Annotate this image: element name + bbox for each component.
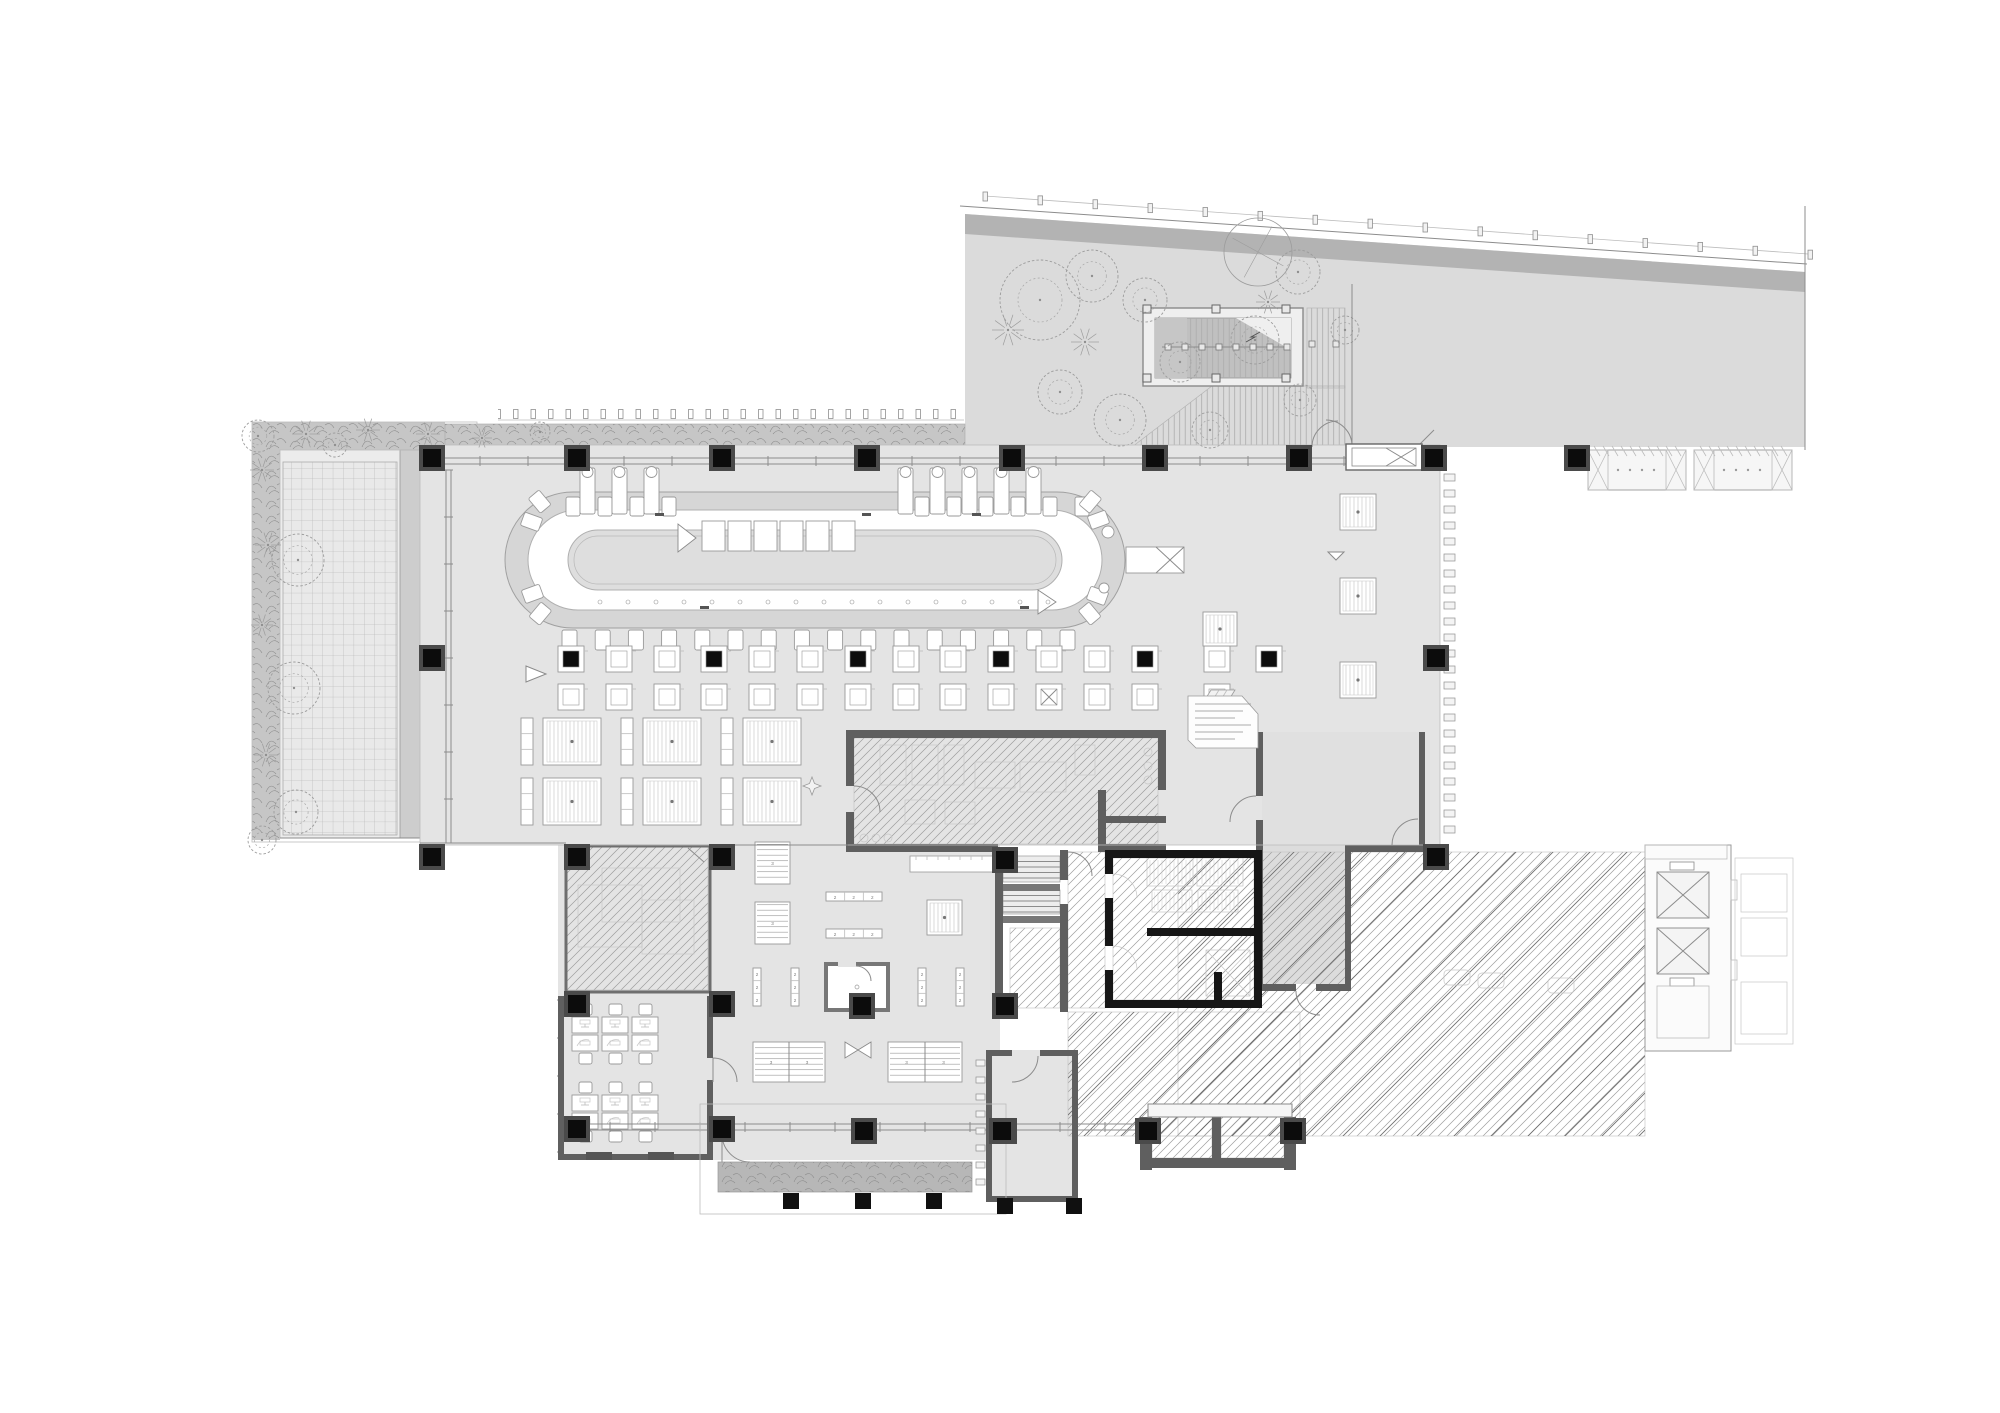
buffet-tray — [806, 521, 829, 551]
counter-seat — [1043, 497, 1057, 516]
counter-seat — [828, 630, 843, 650]
floor-plan: 222222222222222222333333 — [0, 0, 2000, 1413]
buffet-tray — [754, 521, 777, 551]
deck-post — [1199, 344, 1205, 350]
rail-post — [1698, 242, 1703, 251]
mullion — [976, 1128, 985, 1134]
rail-post — [1478, 227, 1483, 236]
mullion — [1444, 490, 1455, 497]
micro-label: 2 — [852, 932, 855, 937]
rail-post — [1368, 219, 1373, 228]
deck-post — [1282, 305, 1290, 313]
hatch-area — [1068, 852, 1105, 1008]
chair — [609, 1082, 622, 1093]
desk — [602, 1035, 628, 1051]
micro-label: 2 — [834, 932, 837, 937]
micro-label: 2 — [794, 985, 797, 990]
deck-post — [1216, 344, 1222, 350]
mullion — [1444, 826, 1455, 833]
chair — [639, 1082, 652, 1093]
rail-post — [1313, 215, 1318, 224]
mullion — [976, 1145, 985, 1151]
counter-seat — [598, 497, 612, 516]
micro-label: 2 — [959, 998, 962, 1003]
mullion — [1444, 794, 1455, 801]
mullion — [1444, 810, 1455, 817]
chair — [639, 1004, 652, 1015]
buffet-tray — [702, 521, 725, 551]
counter-seat — [630, 497, 644, 516]
northeast-entrance — [1346, 444, 1422, 470]
micro-label: 2 — [871, 932, 874, 937]
desk — [572, 1035, 598, 1051]
mullion — [976, 1094, 985, 1100]
deck-post — [1284, 344, 1290, 350]
mullion — [1444, 522, 1455, 529]
rail-post — [1038, 196, 1043, 205]
rail-post — [1423, 223, 1428, 232]
counter-seat — [979, 497, 993, 516]
rail-post — [1588, 235, 1593, 244]
mullion — [1444, 554, 1455, 561]
deck-post — [1233, 344, 1239, 350]
stool — [614, 467, 625, 478]
mullion — [1444, 474, 1455, 481]
micro-label: 2 — [871, 895, 874, 900]
rail-post — [1148, 204, 1153, 213]
mullion — [1444, 538, 1455, 545]
mullion — [1444, 602, 1455, 609]
counter-seat — [728, 630, 743, 650]
mullion — [1444, 746, 1455, 753]
micro-label: 2 — [921, 998, 924, 1003]
street-planters — [1588, 446, 1792, 490]
mullion — [976, 1111, 985, 1117]
counter-seat — [1011, 497, 1025, 516]
micro-label: 2 — [959, 985, 962, 990]
mullion — [1444, 634, 1455, 641]
micro-label: 2 — [756, 972, 759, 977]
mullion — [976, 1179, 985, 1185]
micro-label: 2 — [834, 895, 837, 900]
micro-label: 2 — [756, 985, 759, 990]
micro-label: 3 — [771, 921, 774, 926]
rail-post — [1643, 239, 1648, 248]
column-small — [1066, 1198, 1082, 1214]
rail-post — [1258, 211, 1263, 220]
entry-porch — [718, 1162, 972, 1192]
micro-label: 2 — [794, 972, 797, 977]
deck-post — [1182, 344, 1188, 350]
chair — [609, 1053, 622, 1064]
rail-post — [1533, 231, 1538, 240]
stool — [900, 467, 911, 478]
mullion — [976, 1060, 985, 1066]
desk — [632, 1035, 658, 1051]
mullion — [1444, 698, 1455, 705]
counter-seat — [947, 497, 961, 516]
buffet-tray — [728, 521, 751, 551]
north-hedge — [445, 408, 965, 450]
deck-post — [1250, 344, 1256, 350]
micro-label: 3 — [905, 1060, 908, 1065]
hatch-area — [854, 738, 1158, 844]
deck-post — [1143, 374, 1151, 382]
column-small — [855, 1193, 871, 1209]
northeast-roof-garden — [960, 192, 1813, 450]
mullion — [1444, 778, 1455, 785]
mullion — [1444, 586, 1455, 593]
micro-label: 3 — [942, 1060, 945, 1065]
buffet-tray — [832, 521, 855, 551]
micro-label: 3 — [806, 1060, 809, 1065]
micro-label: 2 — [756, 998, 759, 1003]
stool — [932, 467, 943, 478]
mullion — [1444, 570, 1455, 577]
buffet-tray — [780, 521, 803, 551]
elevator-core — [1645, 845, 1793, 1051]
chair — [639, 1131, 652, 1142]
rail-post — [1093, 200, 1098, 209]
deck-post — [1282, 374, 1290, 382]
desk — [632, 1113, 658, 1129]
stool — [646, 467, 657, 478]
deck-post — [1143, 305, 1151, 313]
micro-label: 3 — [770, 1060, 773, 1065]
deck-post — [1267, 344, 1273, 350]
rail-post — [1753, 246, 1758, 255]
deck-post — [1309, 341, 1315, 347]
chair — [579, 1082, 592, 1093]
revision-note — [1188, 696, 1258, 748]
column-small — [783, 1193, 799, 1209]
deck-post — [1212, 305, 1220, 313]
rail-post — [983, 192, 988, 201]
stool — [1028, 467, 1039, 478]
rail-post — [1203, 208, 1208, 217]
mullion — [1444, 714, 1455, 721]
mullion — [1444, 618, 1455, 625]
floor-plan-sheet: 222222222222222222333333 — [0, 0, 2000, 1413]
mullion — [1444, 762, 1455, 769]
micro-label: 2 — [794, 998, 797, 1003]
counter-seat — [566, 497, 580, 516]
mullion — [1444, 730, 1455, 737]
deck-post — [1212, 374, 1220, 382]
micro-label: 2 — [959, 972, 962, 977]
chair — [579, 1053, 592, 1064]
micro-label: 2 — [921, 985, 924, 990]
mullion — [1444, 506, 1455, 513]
column-small — [926, 1193, 942, 1209]
micro-label: 2 — [921, 972, 924, 977]
mullion — [976, 1077, 985, 1083]
chair — [609, 1004, 622, 1015]
column-small — [997, 1198, 1013, 1214]
chair — [639, 1053, 652, 1064]
rail-post — [1808, 250, 1813, 259]
mullion — [1444, 682, 1455, 689]
mullion — [976, 1162, 985, 1168]
micro-label: 2 — [852, 895, 855, 900]
chair — [609, 1131, 622, 1142]
micro-label: 3 — [771, 861, 774, 866]
stool — [964, 467, 975, 478]
desk — [602, 1113, 628, 1129]
counter-seat — [915, 497, 929, 516]
counter-seat — [662, 497, 676, 516]
